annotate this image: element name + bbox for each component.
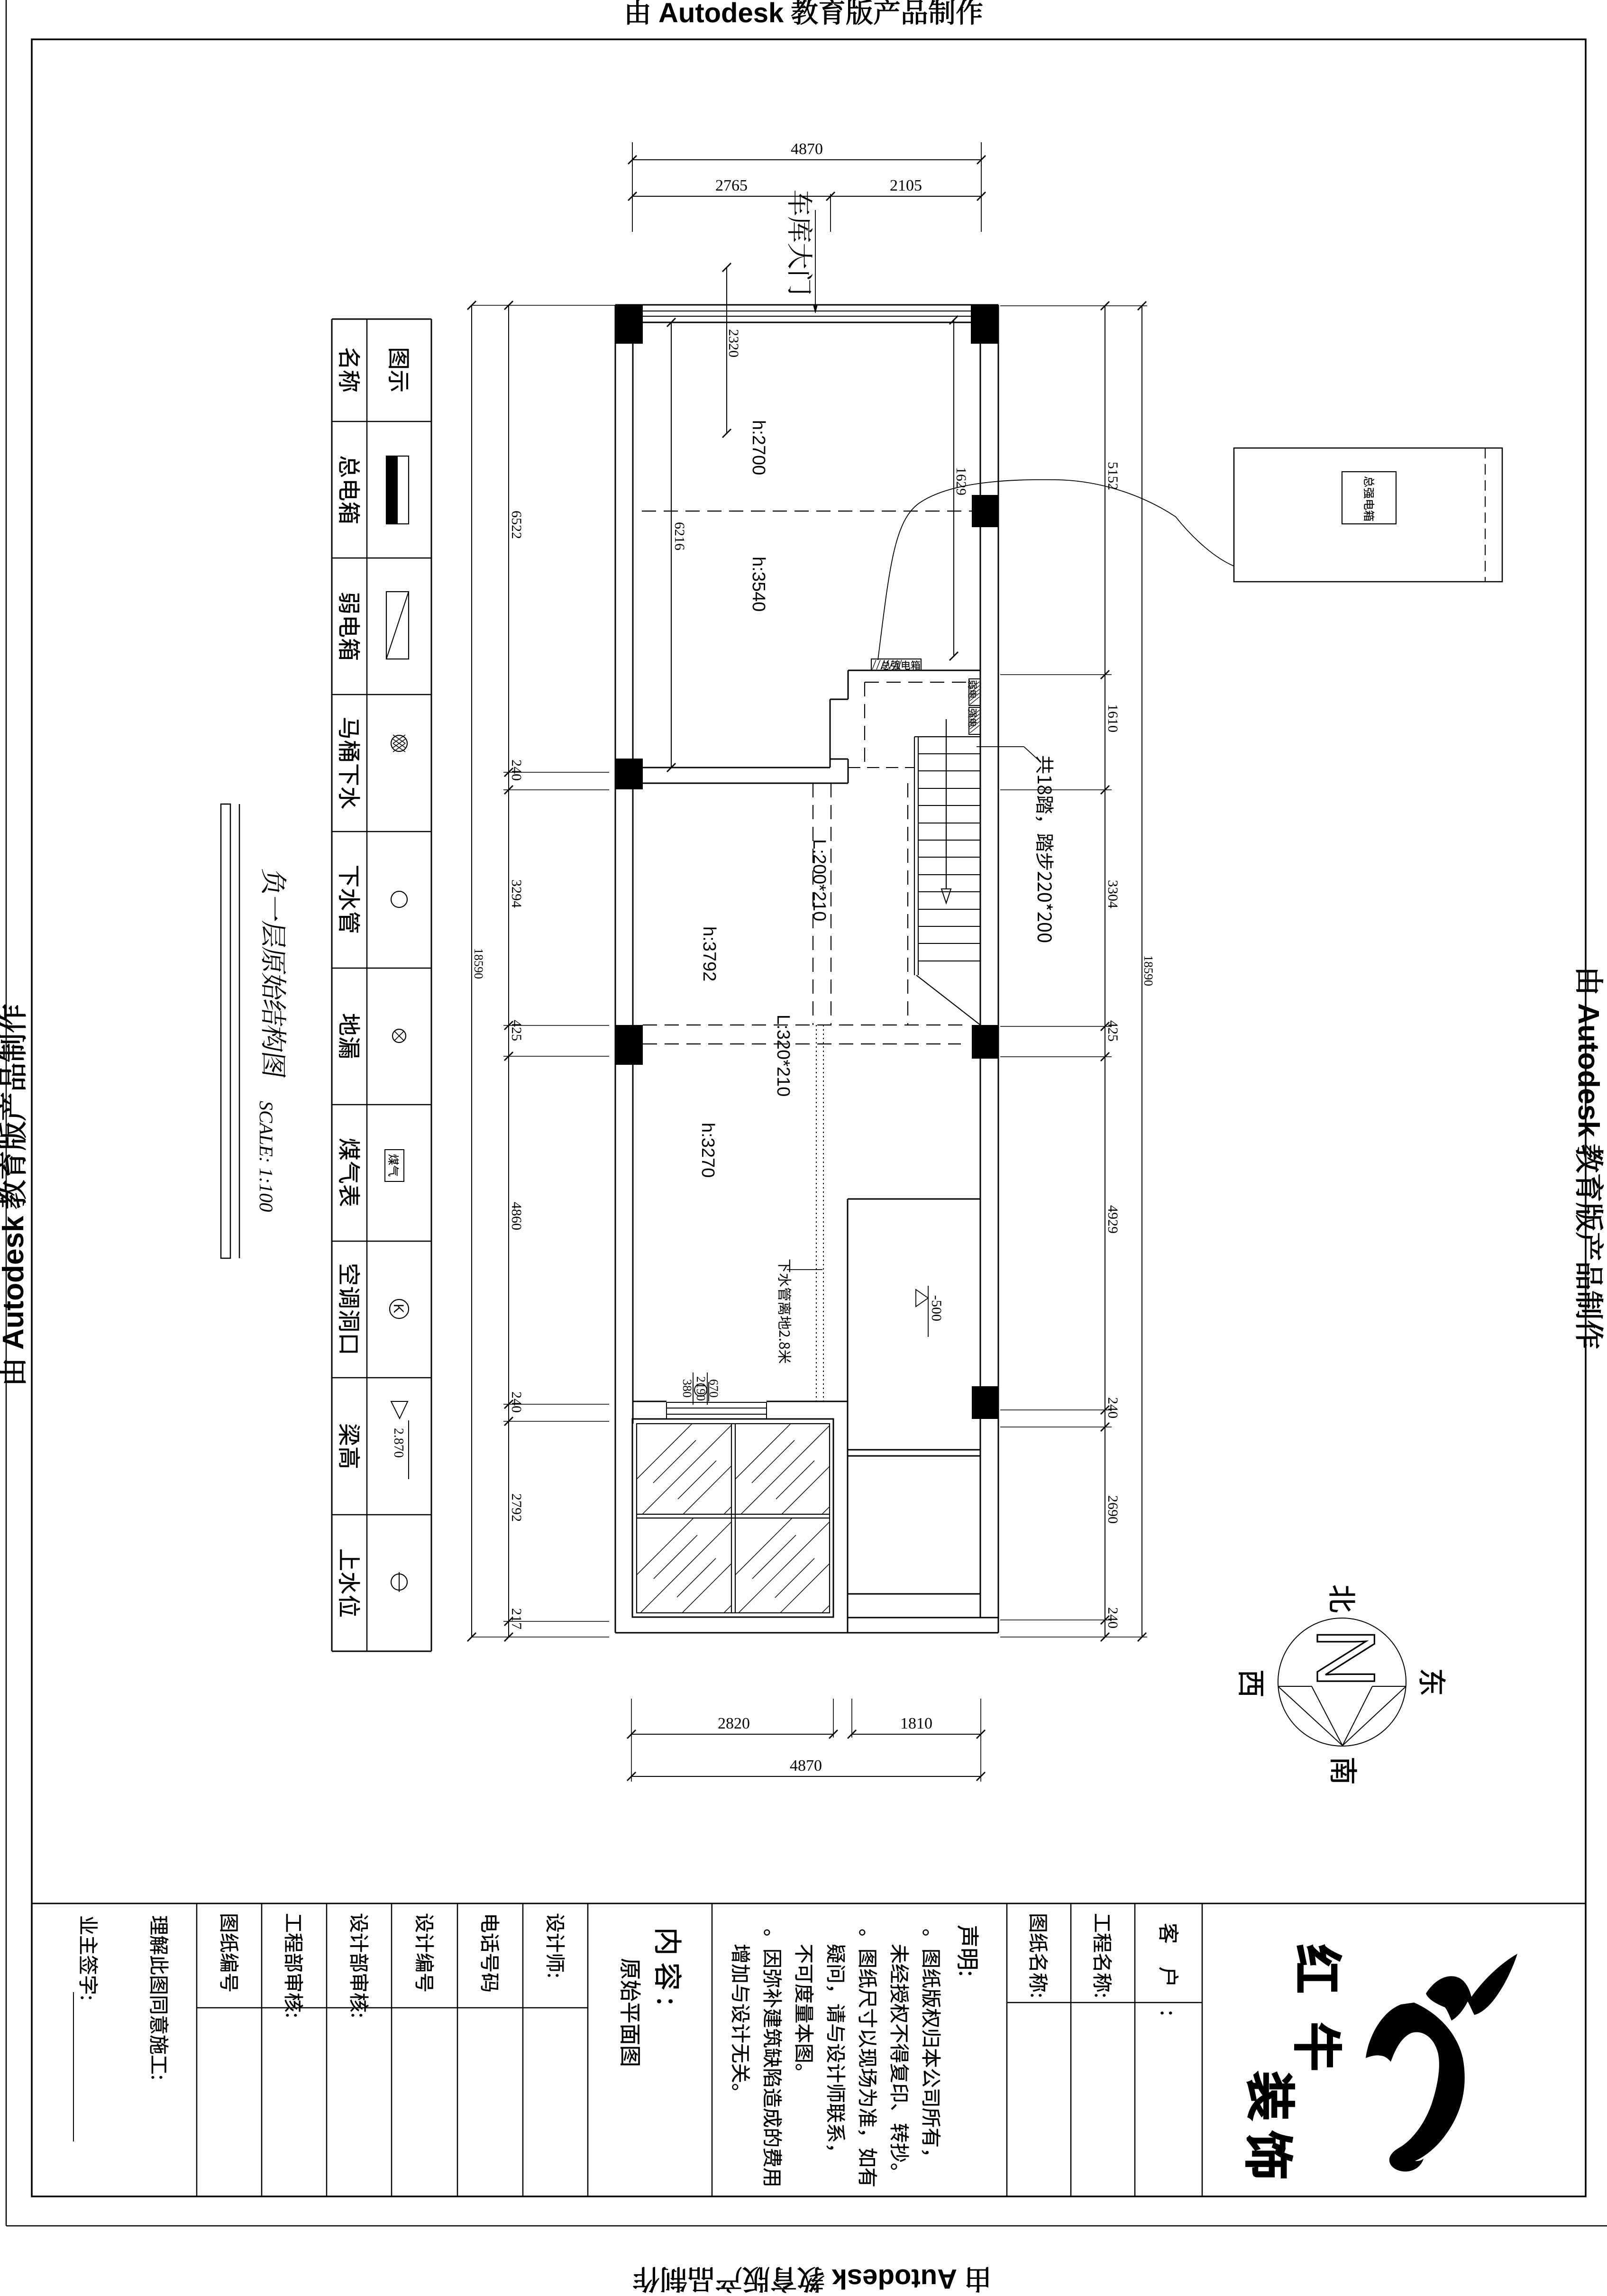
svg-text:h:3792: h:3792 [699, 926, 719, 981]
svg-text:6522: 6522 [509, 511, 524, 539]
svg-text:4929: 4929 [1105, 1205, 1121, 1234]
svg-text:h:3270: h:3270 [698, 1123, 718, 1178]
svg-text:425: 425 [1105, 1020, 1121, 1042]
svg-text:1629: 1629 [953, 467, 969, 495]
svg-text:4870: 4870 [790, 1757, 822, 1775]
svg-text:240: 240 [1105, 1607, 1121, 1628]
svg-text:670: 670 [707, 1379, 721, 1398]
svg-text:N: N [1299, 1628, 1392, 1688]
svg-text:1610: 1610 [1105, 704, 1121, 732]
svg-text:SCALE: 1:100: SCALE: 1:100 [256, 1101, 277, 1212]
svg-text:K: K [391, 1304, 406, 1313]
svg-text:-500: -500 [929, 1295, 944, 1321]
svg-text:4870: 4870 [791, 140, 823, 158]
svg-text:1810: 1810 [900, 1715, 932, 1732]
svg-text:3304: 3304 [1105, 880, 1121, 908]
svg-text:6216: 6216 [672, 522, 687, 550]
svg-text:2690: 2690 [1105, 1495, 1121, 1524]
svg-text:2820: 2820 [718, 1715, 750, 1732]
svg-text:h:3540: h:3540 [749, 557, 768, 612]
svg-text:2792: 2792 [509, 1493, 524, 1522]
svg-text:240: 240 [509, 1391, 524, 1413]
svg-text:18590: 18590 [472, 948, 485, 979]
svg-text:L:320*210: L:320*210 [773, 1015, 793, 1097]
svg-text:240: 240 [509, 759, 524, 781]
svg-text:Autodesk: Autodesk [831, 2263, 957, 2294]
svg-text:Autodesk: Autodesk [0, 1216, 30, 1350]
svg-text:18590: 18590 [1141, 955, 1155, 986]
svg-text:2105: 2105 [890, 177, 922, 194]
svg-text:Autodesk: Autodesk [658, 0, 784, 28]
svg-text:380: 380 [680, 1379, 694, 1398]
svg-text:217: 217 [509, 1608, 524, 1629]
svg-text:h:2700: h:2700 [749, 420, 768, 475]
svg-text:425: 425 [509, 1020, 524, 1041]
svg-text:2320: 2320 [726, 329, 741, 357]
svg-text:L:200*210: L:200*210 [809, 839, 829, 921]
svg-text:5152: 5152 [1105, 462, 1121, 490]
svg-text:3294: 3294 [509, 879, 524, 908]
svg-text:2765: 2765 [715, 177, 748, 194]
svg-text:2.870: 2.870 [391, 1428, 406, 1458]
svg-text:2190: 2190 [694, 1376, 708, 1401]
svg-text:240: 240 [1105, 1397, 1121, 1418]
svg-text:Autodesk: Autodesk [1572, 1003, 1605, 1137]
svg-text:4860: 4860 [509, 1202, 524, 1230]
